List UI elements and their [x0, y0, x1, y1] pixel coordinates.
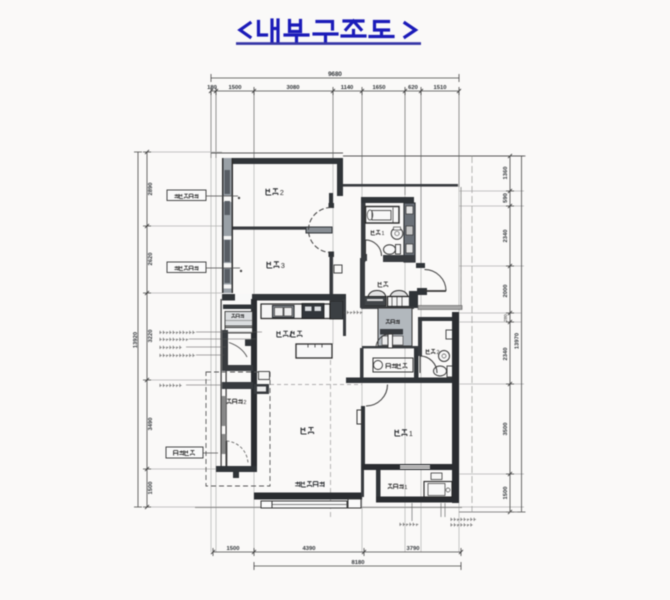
svg-text:13920: 13920	[133, 332, 139, 348]
svg-text:2890: 2890	[148, 183, 154, 196]
svg-text:280: 280	[503, 314, 508, 322]
svg-text:1650: 1650	[373, 85, 386, 91]
svg-text:3490: 3490	[148, 418, 154, 431]
svg-text:1: 1	[404, 485, 407, 491]
svg-text:1360: 1360	[503, 167, 509, 180]
svg-text:13970: 13970	[515, 333, 521, 349]
svg-text:2340: 2340	[503, 348, 509, 361]
svg-text:1500: 1500	[227, 546, 240, 552]
svg-text:4390: 4390	[303, 546, 316, 552]
svg-text:1140: 1140	[341, 85, 354, 91]
svg-text:3220: 3220	[148, 330, 154, 343]
svg-text:180: 180	[207, 85, 217, 91]
svg-text:1510: 1510	[434, 85, 447, 91]
svg-text:3080: 3080	[287, 85, 300, 91]
svg-text:3: 3	[281, 262, 285, 270]
svg-text:2: 2	[280, 189, 284, 197]
svg-text:590: 590	[503, 193, 509, 203]
svg-text:9680: 9680	[328, 71, 342, 78]
svg-text:1500: 1500	[229, 85, 242, 91]
svg-text:2620: 2620	[148, 253, 154, 266]
svg-text:1: 1	[382, 231, 385, 237]
svg-text:3500: 3500	[503, 423, 509, 436]
svg-text:2: 2	[243, 400, 246, 406]
svg-text:8180: 8180	[352, 560, 365, 566]
svg-text:1: 1	[409, 430, 413, 438]
svg-text:1500: 1500	[503, 487, 509, 500]
svg-text:2000: 2000	[503, 285, 509, 298]
svg-text:2340: 2340	[503, 230, 509, 243]
svg-text:620: 620	[408, 85, 418, 91]
svg-text:3790: 3790	[407, 546, 420, 552]
svg-text:1500: 1500	[148, 482, 154, 495]
